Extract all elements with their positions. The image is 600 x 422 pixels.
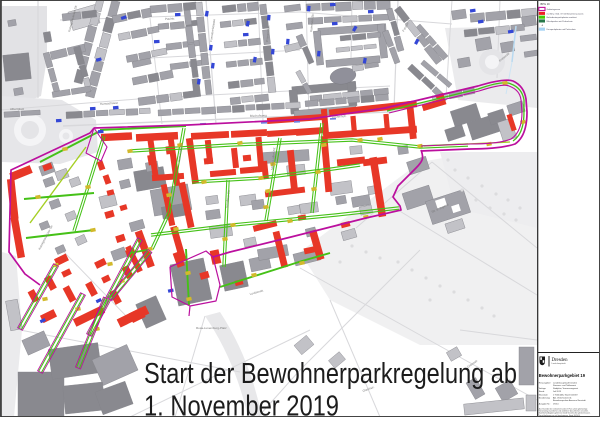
svg-text:Albertplatz: Albertplatz [10, 107, 25, 111]
svg-text:Bewohnerparkgebiet 19: Bewohnerparkgebiet 19 [539, 373, 586, 378]
svg-text:Bischofsweg: Bischofsweg [250, 113, 267, 118]
svg-text:1. November 2019: 1. November 2019 [144, 391, 339, 418]
svg-text:Paulstr.: Paulstr. [165, 16, 175, 21]
svg-text:Bewohnerparken Aeussere Neusta: Bewohnerparken Aeussere Neustadt [553, 399, 586, 402]
svg-text:Kurzparkplaetze mit Parkschein: Kurzparkplaetze mit Parkschein [547, 28, 577, 31]
svg-text:Start der Bewohnerparkregelung: Start der Bewohnerparkregelung ab [144, 358, 517, 390]
svg-text:nur Bew. Geb. 19 mit Bewohnera: nur Bew. Geb. 19 mit Bewohnerausweis [547, 12, 584, 15]
svg-text:Ausgabe Nr.:: Ausgabe Nr.: [539, 403, 551, 406]
svg-text:Stadtplan, Vermessungsamt: Stadtplan, Vermessungsamt [553, 387, 578, 390]
svg-text:Vorlage:: Vorlage: [539, 388, 547, 390]
svg-text:Massstab:: Massstab: [539, 394, 549, 397]
svg-text:Mischparken mit Parkschein: Mischparken mit Parkschein [547, 20, 574, 23]
svg-text:19/4.0: 19/4.0 [553, 404, 559, 406]
svg-text:Behindertenparkplaetze markier: Behindertenparkplaetze markiert [547, 16, 577, 19]
svg-text:Landeshauptstadt: Landeshauptstadt [552, 363, 566, 365]
svg-text:Bearbeitung:: Bearbeitung: [539, 397, 551, 400]
svg-text:Juli 2019: Juli 2019 [553, 391, 562, 393]
svg-text:Herausgeber:: Herausgeber: [539, 383, 552, 385]
svg-text:1:7500 (A3), Stand 10/2019: 1:7500 (A3), Stand 10/2019 [553, 394, 578, 397]
svg-text:+: + [541, 24, 543, 28]
svg-text:Gebietsgrenze: Gebietsgrenze [547, 8, 561, 11]
svg-text:Rosa-Luxemburg-Platz: Rosa-Luxemburg-Platz [196, 326, 227, 330]
svg-text:Stand:: Stand: [539, 390, 545, 393]
svg-text:BPG 19: BPG 19 [541, 2, 551, 6]
svg-text:Strassen- und Tiefbauamt: Strassen- und Tiefbauamt [553, 384, 576, 387]
